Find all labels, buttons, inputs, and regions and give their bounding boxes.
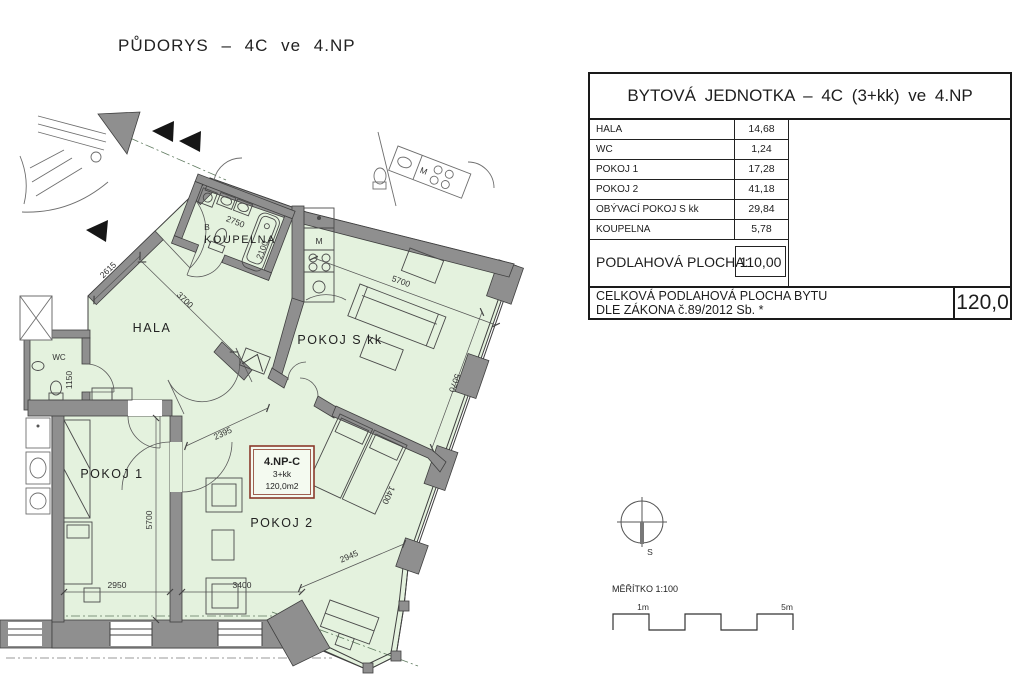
arrow-icon xyxy=(179,131,201,152)
total-value: 120,0 xyxy=(953,288,1010,318)
neighbor-kitchen-letter: M xyxy=(419,165,429,177)
dim-wc-width: 1150 xyxy=(64,371,74,390)
dim-pokoj1-width: 2950 xyxy=(108,580,127,590)
row-label: KOUPELNA xyxy=(590,220,734,239)
unit-area: 120,0m2 xyxy=(265,481,298,491)
arrow-icon xyxy=(152,121,174,142)
room-label-pokoj2: POKOJ 2 xyxy=(250,516,313,530)
unit-layout: 3+kk xyxy=(273,469,292,479)
row-value: 17,28 xyxy=(734,160,788,179)
table-row: KOUPELNA 5,78 xyxy=(590,220,788,240)
scale-start-label: 1m xyxy=(637,602,649,612)
table-row: HALA 14,68 xyxy=(590,120,788,140)
table-row: OBÝVACÍ POKOJ S kk 29,84 xyxy=(590,200,788,220)
area-table: BYTOVÁ JEDNOTKA – 4C (3+kk) ve 4.NP HALA… xyxy=(588,72,1012,320)
row-label: POKOJ 2 xyxy=(590,180,734,199)
dim-pokoj2-width: 3400 xyxy=(233,580,252,590)
table-row: POKOJ 2 41,18 xyxy=(590,180,788,200)
arrow-icon xyxy=(86,220,108,242)
floorplan-page: PŮDORYS – 4C ve 4.NP xyxy=(0,0,1024,674)
scale-end-label: 5m xyxy=(781,602,793,612)
room-label-pokoj1: POKOJ 1 xyxy=(80,467,143,481)
dim-pokoj1-depth: 5700 xyxy=(144,510,154,529)
north-compass: S xyxy=(617,497,667,557)
bathroom-letter: B xyxy=(204,222,210,232)
room-label-wc: WC xyxy=(52,353,66,362)
floor-area-row: PODLAHOVÁ PLOCHA: 110,00 xyxy=(590,240,788,286)
unit-code: 4.NP-C xyxy=(264,456,300,468)
row-label: POKOJ 1 xyxy=(590,160,734,179)
row-value: 5,78 xyxy=(734,220,788,239)
row-value: 41,18 xyxy=(734,180,788,199)
room-label-hala: HALA xyxy=(133,321,172,335)
bottom-facade xyxy=(0,620,302,648)
scale-title: MĚŘÍTKO 1:100 xyxy=(612,584,678,594)
row-label: OBÝVACÍ POKOJ S kk xyxy=(590,200,734,219)
unit-label-box: 4.NP-C 3+kk 120,0m2 xyxy=(250,446,314,498)
total-label-line2: DLE ZÁKONA č.89/2012 Sb. * xyxy=(596,303,953,317)
table-title: BYTOVÁ JEDNOTKA – 4C (3+kk) ve 4.NP xyxy=(590,74,1010,120)
row-label: HALA xyxy=(590,120,734,139)
room-label-koupelna: KOUPELNA xyxy=(204,234,276,246)
neighbor-fixtures-left xyxy=(26,418,50,514)
stairwell xyxy=(20,112,140,212)
table-empty-cell xyxy=(788,120,1010,286)
table-row: POKOJ 1 17,28 xyxy=(590,160,788,180)
total-label: CELKOVÁ PODLAHOVÁ PLOCHA BYTU DLE ZÁKONA… xyxy=(590,288,953,318)
kitchen-letter: M xyxy=(315,236,322,246)
room-label-pokoj-s-kk: POKOJ S kk xyxy=(297,333,382,347)
floor-area-value-box: 110,00 xyxy=(735,246,786,277)
table-row: WC 1,24 xyxy=(590,140,788,160)
neighbor-kitchen: M xyxy=(389,146,471,198)
floor-area-label: PODLAHOVÁ PLOCHA: xyxy=(596,240,749,284)
compass-south-label: S xyxy=(647,547,653,557)
elevator xyxy=(20,296,52,340)
row-value: 29,84 xyxy=(734,200,788,219)
total-label-line1: CELKOVÁ PODLAHOVÁ PLOCHA BYTU xyxy=(596,289,953,303)
scale-bar: MĚŘÍTKO 1:100 1m 5m xyxy=(612,584,793,630)
row-value: 1,24 xyxy=(734,140,788,159)
row-value: 14,68 xyxy=(734,120,788,139)
floor-area-value: 110,00 xyxy=(740,254,782,270)
table-rows: HALA 14,68 WC 1,24 POKOJ 1 17,28 POKOJ 2… xyxy=(590,120,788,240)
total-row: CELKOVÁ PODLAHOVÁ PLOCHA BYTU DLE ZÁKONA… xyxy=(590,286,1010,318)
row-label: WC xyxy=(590,140,734,159)
